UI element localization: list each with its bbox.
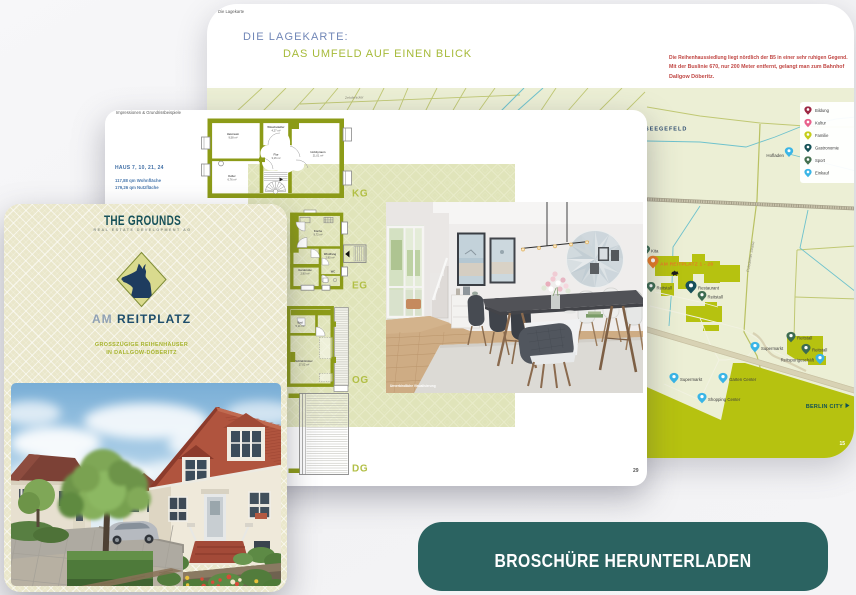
svg-text:Supermarkt: Supermarkt xyxy=(761,346,784,351)
svg-text:Küche: Küche xyxy=(314,229,323,233)
svg-text:Einkauf: Einkauf xyxy=(815,171,830,176)
svg-text:9,72 m²: 9,72 m² xyxy=(313,233,322,237)
svg-text:Garten Center: Garten Center xyxy=(729,377,757,382)
svg-text:AM REITPLATZ 1 - 28: AM REITPLATZ 1 - 28 xyxy=(660,262,713,268)
svg-text:OG: OG xyxy=(352,375,369,386)
svg-text:9,58 m²: 9,58 m² xyxy=(228,136,237,140)
svg-text:WC: WC xyxy=(331,270,336,274)
svg-text:Gastronomie: Gastronomie xyxy=(815,146,840,151)
svg-text:Familie: Familie xyxy=(815,133,829,138)
svg-text:Bad: Bad xyxy=(297,321,302,325)
svg-text:Reitstall: Reitstall xyxy=(657,286,672,291)
svg-text:Hofladen: Hofladen xyxy=(766,153,784,158)
svg-text:Supermarkt: Supermarkt xyxy=(680,377,703,382)
svg-text:Shopping Center: Shopping Center xyxy=(708,397,741,402)
svg-text:15: 15 xyxy=(839,441,845,447)
svg-text:Bildung: Bildung xyxy=(815,108,830,113)
svg-text:Reitstall: Reitstall xyxy=(812,348,827,353)
svg-text:Sport: Sport xyxy=(815,158,826,163)
svg-text:Zehdenicker: Zehdenicker xyxy=(345,95,365,100)
svg-text:Reitstall: Reitstall xyxy=(797,336,812,341)
svg-text:SEEGEFELD: SEEGEFELD xyxy=(645,127,687,133)
svg-text:BERLIN CITY: BERLIN CITY xyxy=(806,404,843,410)
svg-text:2,90 m²: 2,90 m² xyxy=(300,272,309,276)
svg-text:6,76 m²: 6,76 m² xyxy=(227,178,236,182)
svg-text:EG: EG xyxy=(352,281,368,292)
svg-text:Windfang: Windfang xyxy=(324,252,337,256)
svg-text:Hobbyraum: Hobbyraum xyxy=(311,150,327,154)
svg-text:Reitsportgeschäft: Reitsportgeschäft xyxy=(781,358,815,363)
svg-text:Unverbindliche Visualisierung: Unverbindliche Visualisierung xyxy=(390,384,436,388)
svg-text:Restaurant: Restaurant xyxy=(698,286,720,291)
svg-text:2,85 m²: 2,85 m² xyxy=(325,256,334,260)
svg-text:Kita: Kita xyxy=(651,249,659,254)
svg-text:4,27 m²: 4,27 m² xyxy=(271,129,280,133)
svg-text:21,01 m²: 21,01 m² xyxy=(313,154,324,158)
svg-text:17,02 m²: 17,02 m² xyxy=(299,363,310,367)
svg-text:Reitstall: Reitstall xyxy=(708,295,723,300)
svg-text:DG: DG xyxy=(352,464,368,475)
svg-text:KG: KG xyxy=(352,189,368,200)
svg-text:Schlafzimmer: Schlafzimmer xyxy=(295,359,312,363)
svg-text:Kultur: Kultur xyxy=(815,121,827,126)
svg-text:Wäschekeller: Wäschekeller xyxy=(267,125,284,129)
svg-text:Garderobe: Garderobe xyxy=(298,268,312,272)
svg-text:Keller: Keller xyxy=(228,174,235,178)
svg-text:Heizraum: Heizraum xyxy=(227,132,240,136)
svg-text:Flur: Flur xyxy=(273,153,278,157)
svg-text:3,16 m²: 3,16 m² xyxy=(271,156,280,160)
svg-text:5,11 m²: 5,11 m² xyxy=(296,324,305,328)
